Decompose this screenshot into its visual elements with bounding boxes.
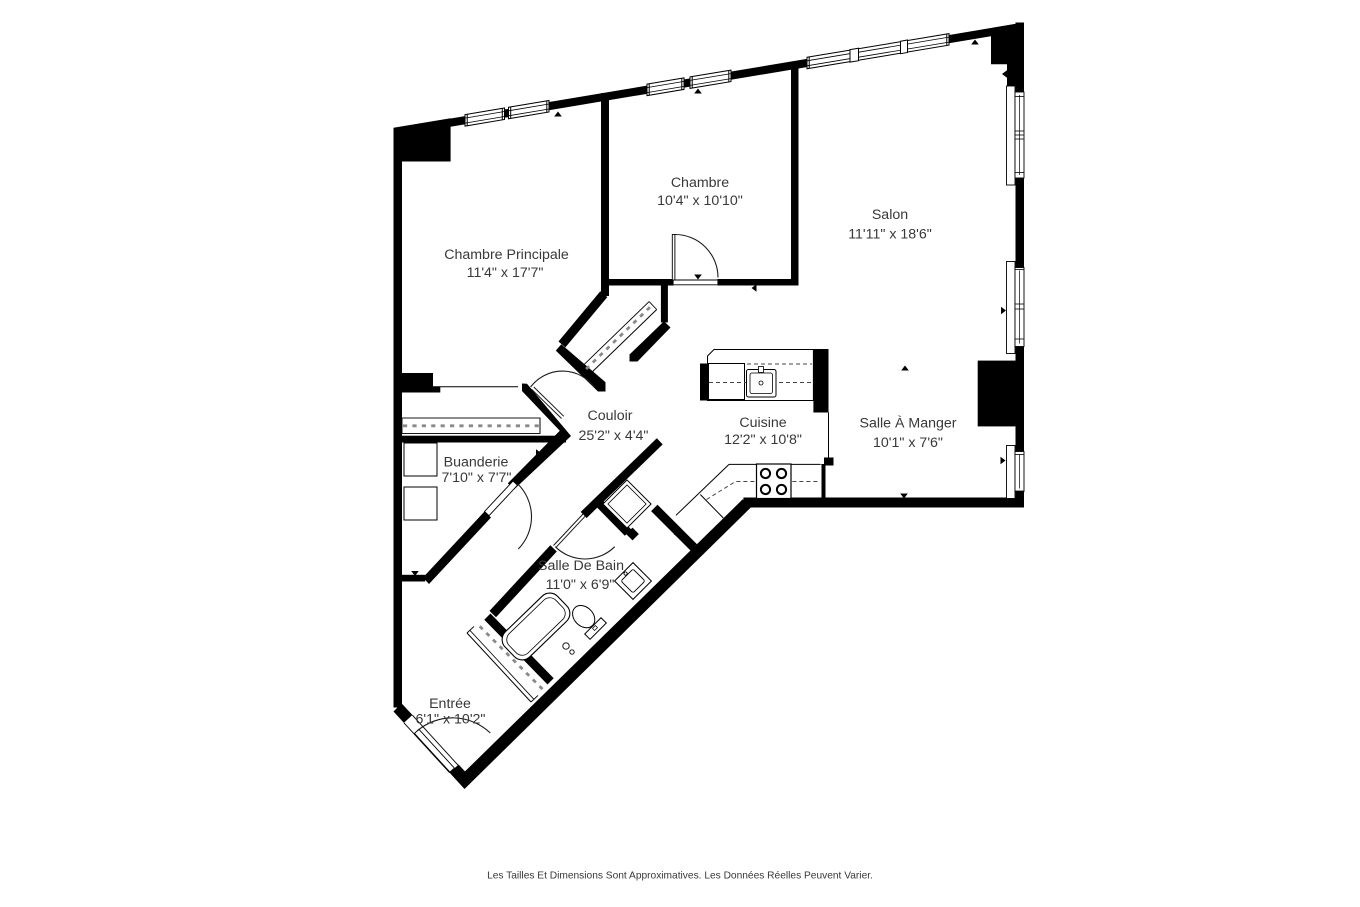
svg-text:Salon: Salon: [872, 207, 908, 223]
svg-text:Salle À Manger: Salle À Manger: [860, 415, 957, 432]
svg-text:Buanderie: Buanderie: [444, 455, 509, 471]
svg-text:6'1" x 10'2": 6'1" x 10'2": [416, 712, 486, 728]
svg-text:Les Tailles Et Dimensions Sont: Les Tailles Et Dimensions Sont Approxima…: [487, 871, 873, 882]
svg-text:12'2" x 10'8": 12'2" x 10'8": [724, 432, 802, 448]
svg-text:11'4" x 17'7": 11'4" x 17'7": [467, 265, 544, 281]
svg-text:11'0" x 6'9": 11'0" x 6'9": [546, 577, 615, 593]
svg-text:11'11" x 18'6": 11'11" x 18'6": [848, 227, 932, 243]
svg-text:25'2" x 4'4": 25'2" x 4'4": [579, 428, 649, 444]
svg-text:Couloir: Couloir: [588, 408, 633, 424]
svg-text:Chambre Principale: Chambre Principale: [444, 247, 569, 263]
svg-text:Entrée: Entrée: [429, 696, 471, 712]
svg-text:10'4" x 10'10": 10'4" x 10'10": [657, 193, 743, 209]
svg-text:Chambre: Chambre: [671, 175, 729, 191]
svg-text:Cuisine: Cuisine: [739, 415, 786, 431]
svg-text:7'10" x 7'7": 7'10" x 7'7": [442, 470, 512, 486]
svg-text:Salle De Bain: Salle De Bain: [538, 558, 624, 574]
svg-text:10'1" x 7'6": 10'1" x 7'6": [873, 435, 943, 451]
